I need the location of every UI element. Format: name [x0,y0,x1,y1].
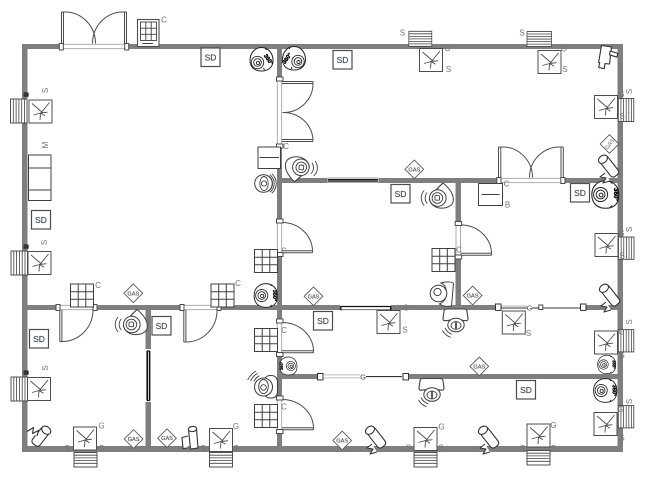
svg-text:C: C [456,246,462,255]
svg-text:S: S [619,351,624,360]
svg-text:S: S [64,444,69,453]
svg-text:C: C [283,142,289,151]
svg-text:S: S [402,326,407,335]
svg-text:G: G [550,421,556,430]
svg-text:S: S [625,319,634,324]
svg-text:S: S [625,399,634,404]
svg-text:S: S [551,444,556,453]
svg-text:S: S [233,444,238,453]
svg-text:G: G [403,304,409,313]
svg-text:M: M [41,141,50,148]
svg-text:C: C [95,281,101,290]
svg-text:S: S [406,444,411,453]
svg-text:S: S [619,252,624,261]
svg-text:S: S [446,65,451,74]
svg-text:G: G [233,422,239,431]
svg-text:S: S [41,365,50,370]
svg-text:S: S [520,444,525,453]
svg-text:C: C [235,279,241,288]
svg-text:G: G [438,423,444,432]
svg-text:G: G [618,90,624,99]
svg-text:C: C [281,247,287,256]
svg-text:S: S [619,434,624,443]
svg-text:S: S [526,329,531,338]
svg-text:S: S [200,444,205,453]
svg-text:B: B [505,201,510,210]
svg-text:S: S [619,112,624,121]
svg-text:G: G [618,229,624,238]
svg-text:G: G [527,304,533,313]
svg-text:S: S [41,88,50,93]
svg-text:S: S [99,444,104,453]
svg-text:G: G [98,422,104,431]
svg-text:G: G [444,44,450,53]
svg-text:S: S [438,444,443,453]
svg-text:C: C [161,16,167,25]
svg-text:G: G [618,328,624,337]
svg-text:S: S [625,227,634,232]
svg-text:G: G [360,373,366,382]
svg-text:C: C [281,326,287,335]
svg-text:C: C [281,403,287,412]
svg-text:G: G [561,45,567,54]
svg-text:S: S [562,65,567,74]
svg-text:C: C [504,180,510,189]
svg-text:S: S [625,89,634,94]
svg-text:S: S [400,29,405,38]
svg-text:G: G [618,405,624,414]
svg-text:S: S [40,240,49,245]
svg-text:S: S [519,29,524,38]
